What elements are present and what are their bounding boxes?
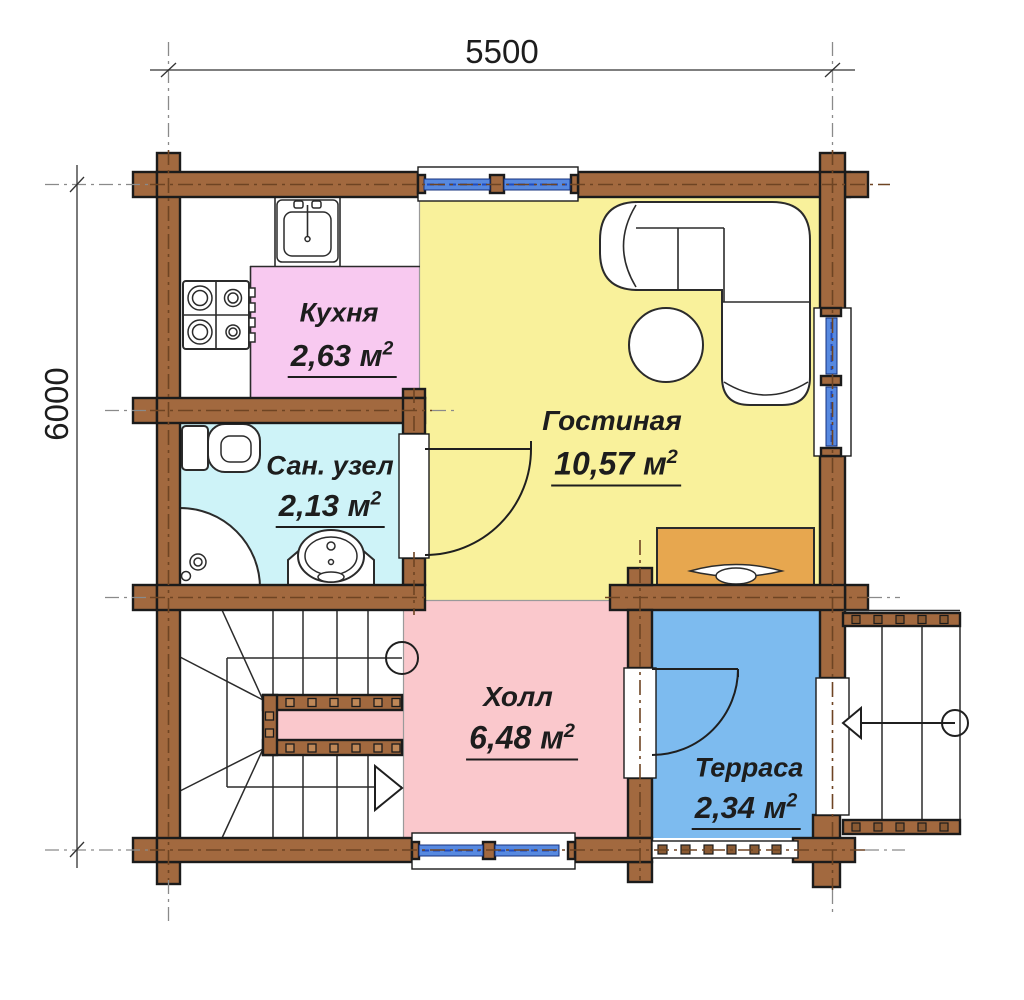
entry-steps	[843, 611, 968, 835]
room-label-hall: Холл	[483, 681, 553, 713]
stove-icon	[183, 281, 255, 349]
entry-railing-bottom	[843, 820, 960, 834]
floor-plan: 5500 6000 Кухня 2,63 м2 Сан. узел 2,13 м…	[0, 0, 1024, 1000]
floor-plan-drawing	[0, 0, 1024, 1000]
dimension-width-label: 5500	[465, 33, 538, 71]
room-area-hall: 6,48 м2	[466, 720, 578, 757]
room-area-bathroom: 2,13 м2	[276, 488, 385, 524]
hall-corridor-floor	[277, 710, 403, 740]
toilet-icon	[182, 424, 260, 472]
room-label-terrace: Терраса	[695, 753, 804, 784]
entry-railing-top	[843, 613, 960, 626]
room-label-bathroom: Сан. узел	[266, 451, 393, 482]
entry-direction-arrow	[843, 708, 968, 738]
stair-direction-arrow	[375, 766, 402, 810]
console-table-icon	[657, 528, 814, 588]
round-table-icon	[629, 308, 703, 382]
room-area-kitchen: 2,63 м2	[288, 338, 397, 374]
window-bottom	[412, 833, 575, 869]
kitchen-floor	[250, 266, 420, 398]
room-area-terrace: 2,34 м2	[692, 790, 801, 826]
dimension-height-label: 6000	[38, 367, 76, 440]
room-area-living: 10,57 м2	[551, 446, 681, 483]
room-label-kitchen: Кухня	[300, 298, 379, 329]
kitchen-sink-icon	[277, 200, 338, 262]
room-label-living: Гостиная	[542, 405, 681, 437]
